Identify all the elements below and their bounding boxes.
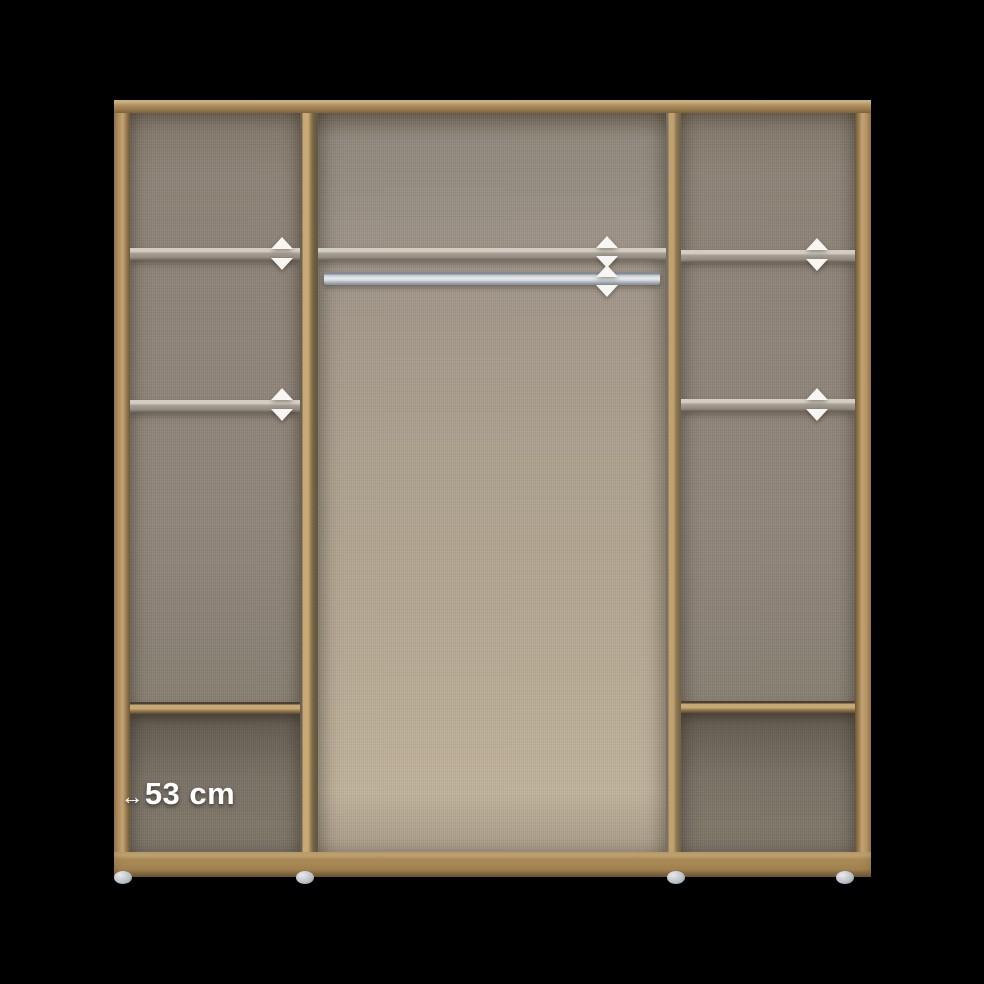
- center-section-back-panel: [318, 113, 666, 852]
- shelf-adjust-up-arrow-icon: [271, 388, 293, 400]
- dimension-label: ↔53 cm: [121, 777, 235, 814]
- shelf-adjust-down-arrow-icon: [271, 409, 293, 421]
- wardrobe-right-wall: [855, 113, 871, 852]
- rail-adjust-up-arrow-icon: [596, 265, 618, 277]
- shelf-adjust-up-arrow-icon: [806, 238, 828, 250]
- wardrobe-foot: [114, 871, 132, 884]
- shelf-adjust-up-arrow-icon: [596, 236, 618, 248]
- right-adjustable-shelf-1: [681, 250, 855, 262]
- divider-left-center: [300, 113, 318, 852]
- rail-adjust-down-arrow-icon: [596, 285, 618, 297]
- shelf-adjust-down-arrow-icon: [271, 258, 293, 270]
- left-right-arrow-icon: ↔: [121, 784, 144, 809]
- shelf-adjust-up-arrow-icon: [271, 237, 293, 249]
- wardrobe-left-wall: [114, 113, 130, 852]
- shelf-adjust-down-arrow-icon: [806, 409, 828, 421]
- wardrobe: [114, 100, 871, 877]
- right-bottom-compartment-shadow: [681, 713, 855, 852]
- wardrobe-foot: [296, 871, 314, 884]
- wardrobe-top-board: [114, 100, 871, 113]
- left-fixed-shelf: [130, 702, 300, 714]
- wardrobe-foot: [836, 871, 854, 884]
- black-background: ↔53 cm: [0, 0, 984, 984]
- wardrobe-foot: [667, 871, 685, 884]
- shelf-adjust-down-arrow-icon: [806, 259, 828, 271]
- shelf-adjust-up-arrow-icon: [806, 388, 828, 400]
- wardrobe-bottom-board: [114, 852, 871, 877]
- dimension-value: 53 cm: [145, 776, 235, 811]
- right-adjustable-shelf-2: [681, 399, 855, 411]
- right-fixed-shelf: [681, 701, 855, 713]
- divider-center-right: [666, 113, 681, 852]
